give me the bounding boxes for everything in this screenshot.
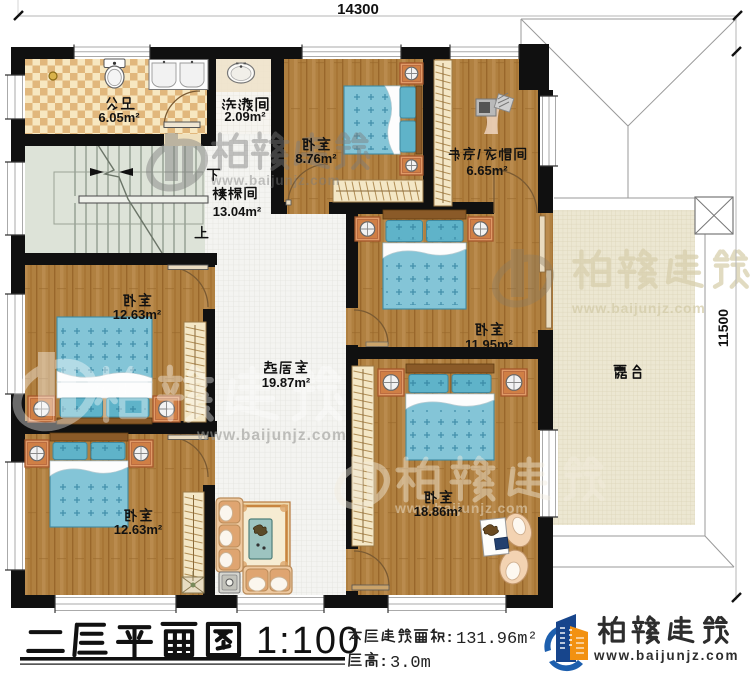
svg-text:www.baijunjz.com: www.baijunjz.com [196, 427, 347, 444]
svg-text:www.baijunjz.com: www.baijunjz.com [593, 648, 739, 663]
svg-text:131.96m²: 131.96m² [456, 630, 538, 649]
svg-text:8.76m²: 8.76m² [295, 151, 337, 166]
svg-text:1:100: 1:100 [256, 620, 361, 662]
svg-text:13.04m²: 13.04m² [213, 204, 262, 219]
svg-text:2.09m²: 2.09m² [224, 109, 266, 124]
svg-text:www.baijunjz.com: www.baijunjz.com [210, 173, 340, 188]
svg-text:3.0m: 3.0m [390, 654, 431, 673]
svg-text:/: / [477, 146, 481, 162]
svg-text:19.87m²: 19.87m² [262, 375, 311, 390]
svg-text:www.baijunjz.com: www.baijunjz.com [571, 300, 706, 316]
svg-text:12.63m²: 12.63m² [114, 522, 163, 537]
svg-text:6.05m²: 6.05m² [98, 110, 140, 125]
svg-text:18.86m²: 18.86m² [414, 504, 463, 519]
svg-text::: : [447, 629, 452, 646]
svg-text:11500: 11500 [715, 309, 731, 347]
svg-text::: : [381, 653, 386, 670]
svg-text:6.65m²: 6.65m² [466, 163, 508, 178]
svg-text:14300: 14300 [337, 1, 379, 18]
svg-text:11.95m²: 11.95m² [465, 337, 513, 352]
svg-text:12.63m²: 12.63m² [113, 307, 162, 322]
